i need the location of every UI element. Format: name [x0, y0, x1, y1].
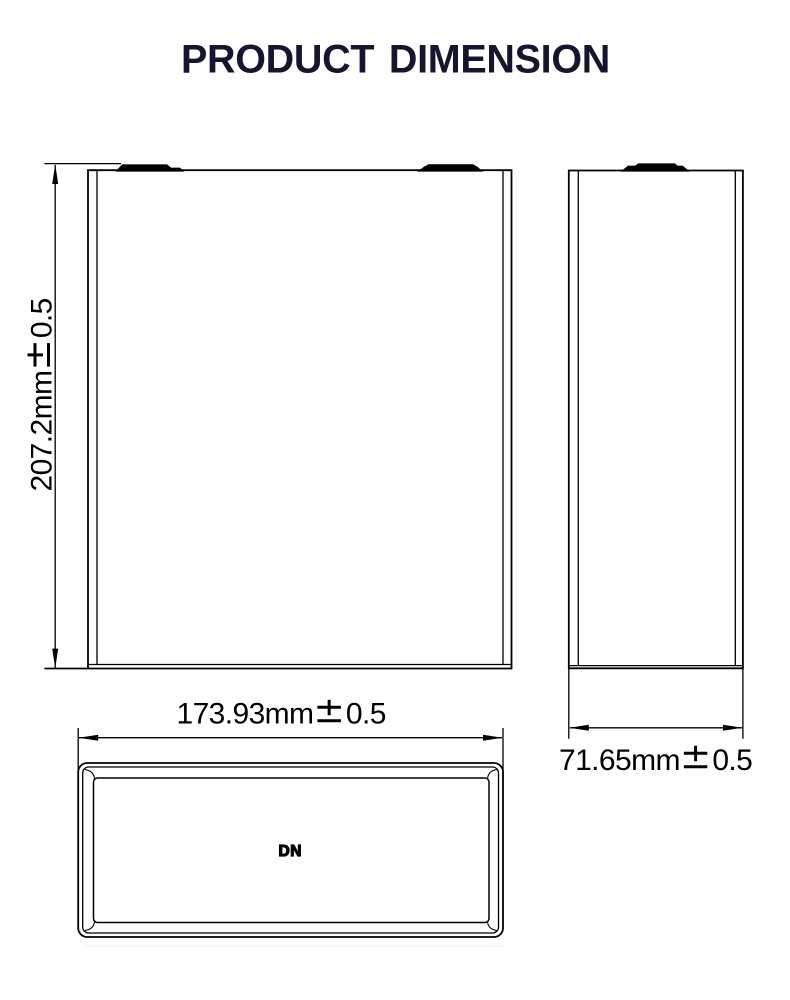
svg-text:173.93mm: 173.93mm: [177, 698, 314, 731]
svg-text:PRODUCT DIMENSION: PRODUCT DIMENSION: [181, 38, 610, 82]
svg-text:207.2mm: 207.2mm: [26, 371, 59, 492]
svg-text:0.5: 0.5: [26, 298, 59, 338]
svg-text:0.5: 0.5: [712, 744, 752, 777]
svg-text:0.5: 0.5: [346, 698, 386, 731]
svg-text:DN: DN: [279, 843, 303, 860]
svg-text:71.65mm: 71.65mm: [559, 744, 680, 777]
